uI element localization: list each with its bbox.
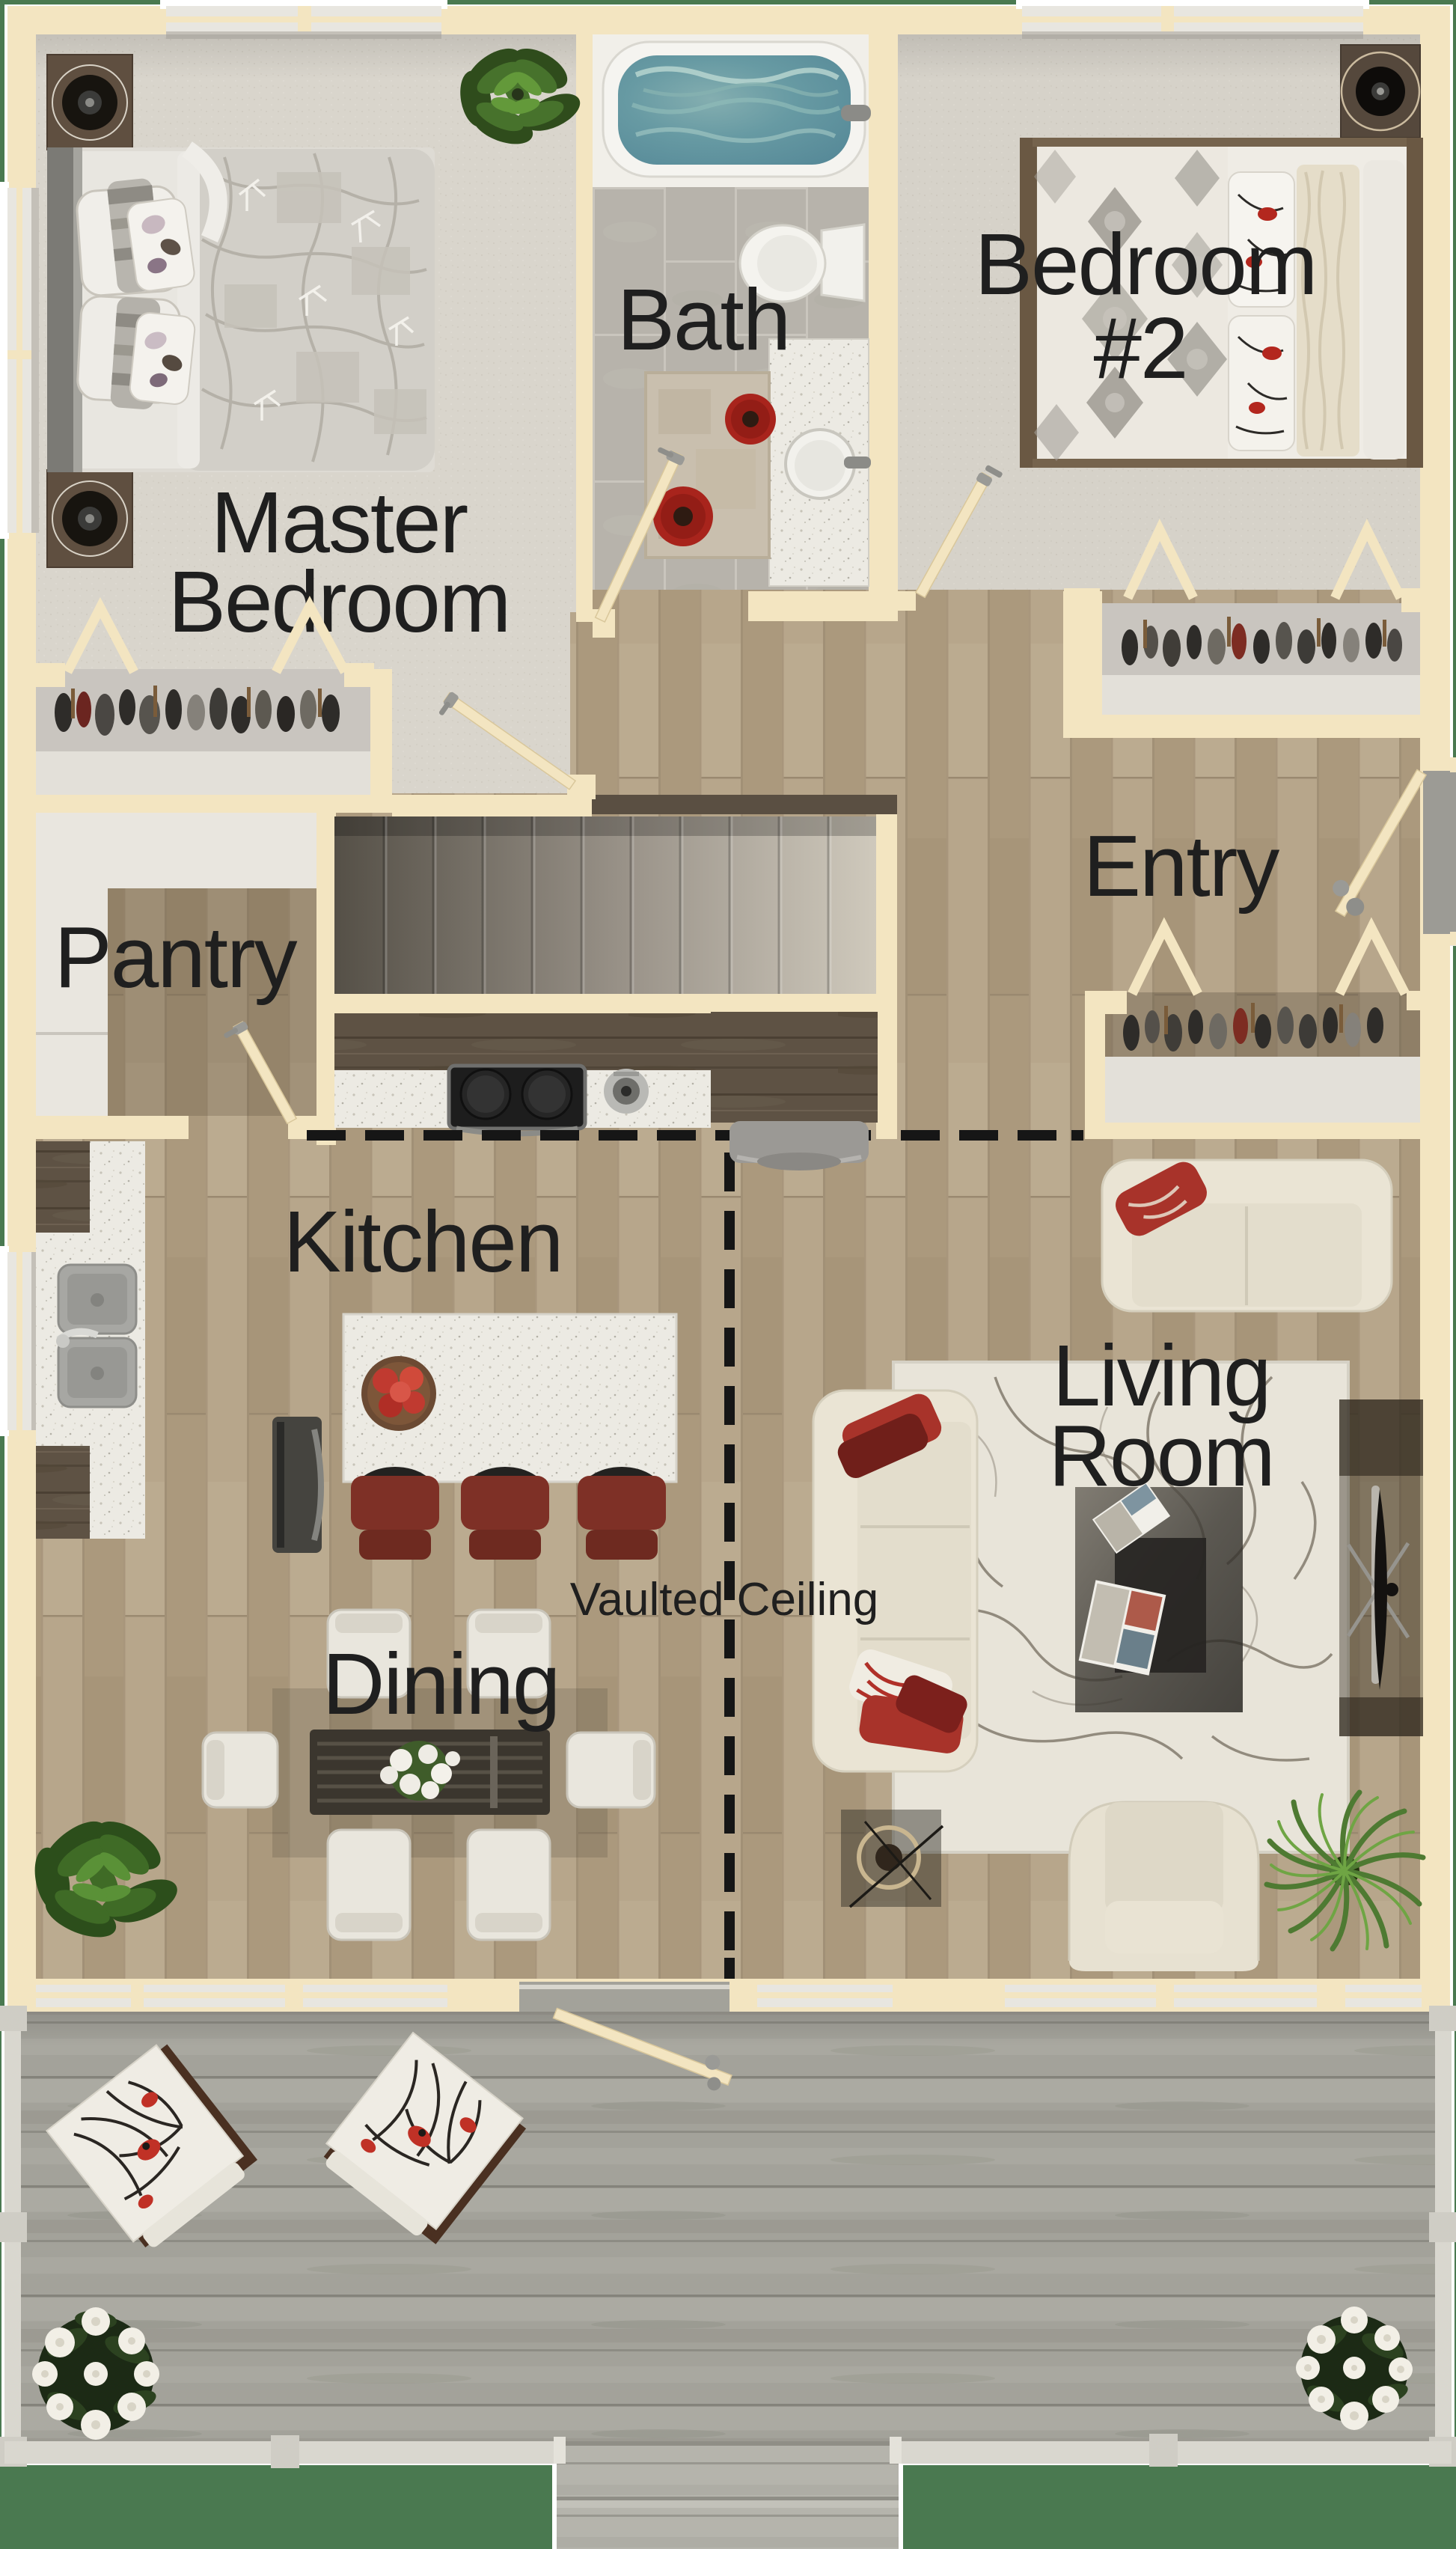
svg-text:Bath: Bath <box>617 271 790 368</box>
svg-text:Entry: Entry <box>1083 817 1280 915</box>
svg-text:Dining: Dining <box>322 1635 560 1733</box>
svg-text:#2: #2 <box>1093 299 1187 397</box>
svg-text:Pantry: Pantry <box>54 909 297 1006</box>
svg-text:Bedroom: Bedroom <box>975 216 1317 313</box>
svg-text:Room: Room <box>1048 1407 1273 1504</box>
svg-text:Bedroom: Bedroom <box>168 553 510 650</box>
svg-text:Kitchen: Kitchen <box>284 1193 563 1290</box>
